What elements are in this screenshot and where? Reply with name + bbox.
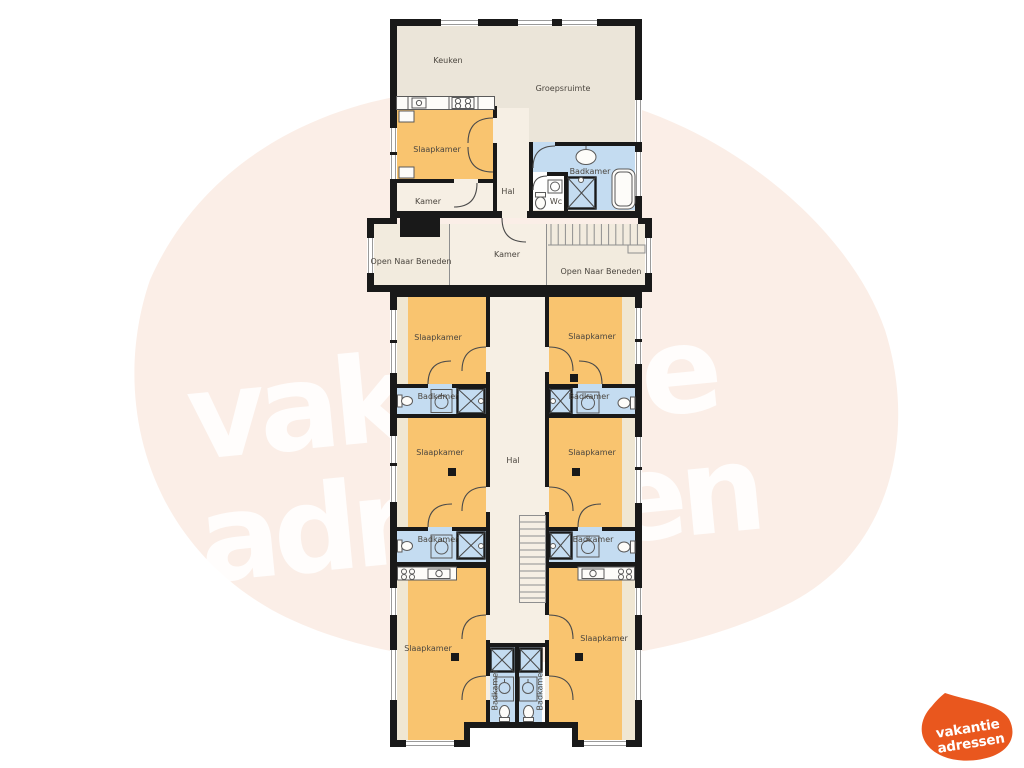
room-label-slaapkamer-low-right: Slaapkamer xyxy=(568,448,616,457)
closet xyxy=(399,111,414,122)
room-label-groepsruimte: Groepsruimte xyxy=(536,84,591,93)
room-label-badkamer-mid-left: Badkamer xyxy=(418,392,460,401)
toilet-symbol xyxy=(618,398,630,408)
room-label-badkamer-top: Badkamer xyxy=(570,167,612,176)
toilet-symbol xyxy=(524,706,534,719)
room-label-badkamer-low-left: Badkamer xyxy=(418,535,460,544)
room-slaapkamer-low-left xyxy=(408,418,486,527)
room-label-slaapkamer-bottom-right: Slaapkamer xyxy=(580,634,628,643)
room-label-wc: Wc xyxy=(550,197,562,206)
floorplan-canvas: vakantie adressen xyxy=(0,0,1024,768)
room-label-slaapkamer-top: Slaapkamer xyxy=(413,145,461,154)
room-label-kamer-mid: Kamer xyxy=(494,250,521,259)
room-label-keuken: Keuken xyxy=(433,56,462,65)
brand-logo: vakantie adressen xyxy=(922,693,1013,761)
toilet-symbol xyxy=(618,542,630,552)
hal-top xyxy=(497,108,529,212)
kitchen-counter xyxy=(397,97,495,110)
room-fills xyxy=(374,26,645,740)
room-slaapkamer-bottom-right xyxy=(549,568,622,740)
room-label-badkamer-low-right: Badkamer xyxy=(573,535,615,544)
room-slaapkamer-bottom-left xyxy=(408,568,486,740)
room-label-open-naar-beneden-left: Open Naar Beneden xyxy=(370,257,451,266)
room-label-open-naar-beneden-right: Open Naar Beneden xyxy=(560,267,641,276)
room-label-badkamer-narrow-left: Badkamer xyxy=(491,669,500,711)
room-label-slaapkamer-mid-right: Slaapkamer xyxy=(568,332,616,341)
room-label-hal-top: Hal xyxy=(501,187,514,196)
kitchenette-bottom-right xyxy=(578,567,635,580)
stairs-lower xyxy=(520,516,546,603)
room-label-slaapkamer-mid-left: Slaapkamer xyxy=(414,333,462,342)
toilet-symbol xyxy=(500,706,510,719)
room-slaapkamer-low-right xyxy=(549,418,622,527)
sink-symbol xyxy=(576,150,596,165)
room-kamer-top xyxy=(396,183,493,212)
closet xyxy=(399,167,414,178)
room-label-hal-mid: Hal xyxy=(506,456,519,465)
toilet-symbol xyxy=(536,193,546,198)
room-label-slaapkamer-low-left: Slaapkamer xyxy=(416,448,464,457)
kitchenette-bottom-left xyxy=(398,567,457,580)
floorplan: Keuken Groepsruimte Slaapkamer Badkamer … xyxy=(367,19,652,747)
room-label-slaapkamer-bottom-left: Slaapkamer xyxy=(404,644,452,653)
toilet-symbol xyxy=(402,542,413,551)
room-label-badkamer-narrow-right: Badkamer xyxy=(536,669,545,711)
room-label-kamer-top: Kamer xyxy=(415,197,442,206)
room-label-badkamer-mid-right: Badkamer xyxy=(569,392,611,401)
toilet-symbol xyxy=(402,397,413,406)
